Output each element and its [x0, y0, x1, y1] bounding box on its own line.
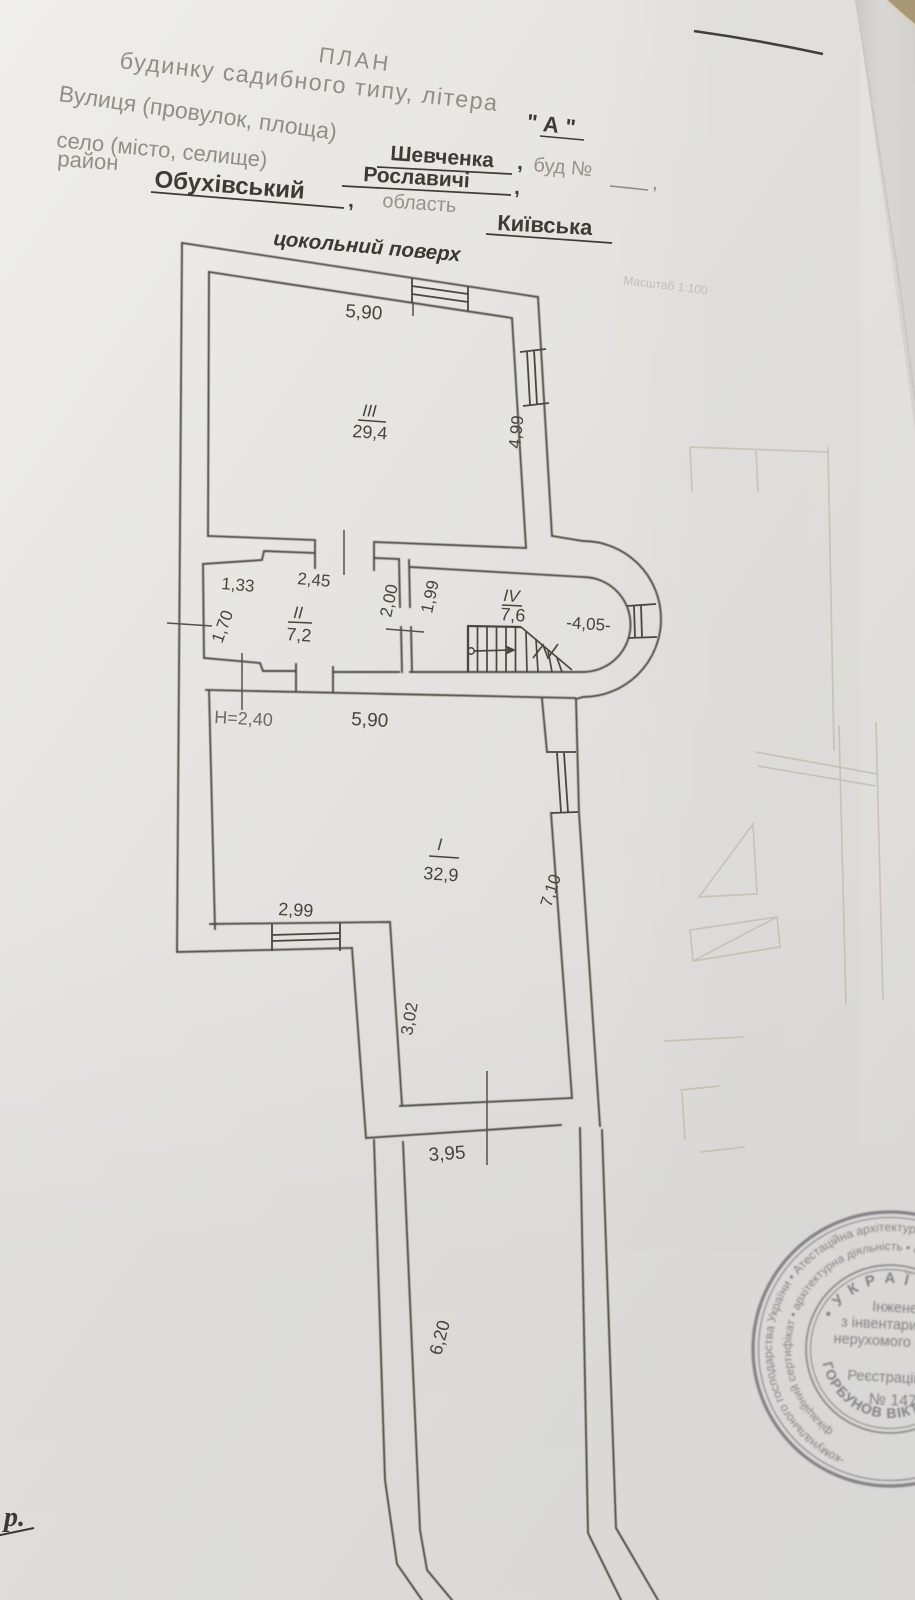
svg-text:2,99: 2,99 — [278, 899, 314, 921]
svg-text:район: район — [57, 146, 120, 175]
svg-text:,: , — [652, 172, 658, 194]
svg-text:№ 1474: № 1474 — [868, 1391, 915, 1411]
svg-text:5,90: 5,90 — [351, 709, 389, 732]
svg-text:5,90: 5,90 — [345, 301, 383, 325]
svg-text:Н=2,40: Н=2,40 — [214, 707, 274, 730]
svg-text:2,45: 2,45 — [297, 569, 332, 591]
svg-text:7,2: 7,2 — [286, 624, 312, 646]
svg-text:-4,05-: -4,05- — [566, 613, 612, 635]
svg-text:,: , — [348, 189, 354, 212]
svg-text:Інженер: Інженер — [872, 1299, 915, 1318]
svg-text:29,4: 29,4 — [352, 421, 388, 443]
svg-text:р.: р. — [2, 1502, 25, 1533]
svg-text:,: , — [514, 176, 520, 199]
svg-text:7,6: 7,6 — [500, 604, 526, 626]
svg-text:III: III — [362, 401, 378, 421]
svg-text:1,33: 1,33 — [221, 574, 256, 596]
svg-text:,: , — [517, 151, 523, 174]
svg-text:4,99: 4,99 — [505, 415, 527, 450]
svg-text:3,95: 3,95 — [428, 1142, 466, 1166]
svg-text:IV: IV — [503, 586, 522, 606]
svg-text:32,9: 32,9 — [423, 863, 459, 885]
svg-text:II: II — [293, 603, 304, 623]
